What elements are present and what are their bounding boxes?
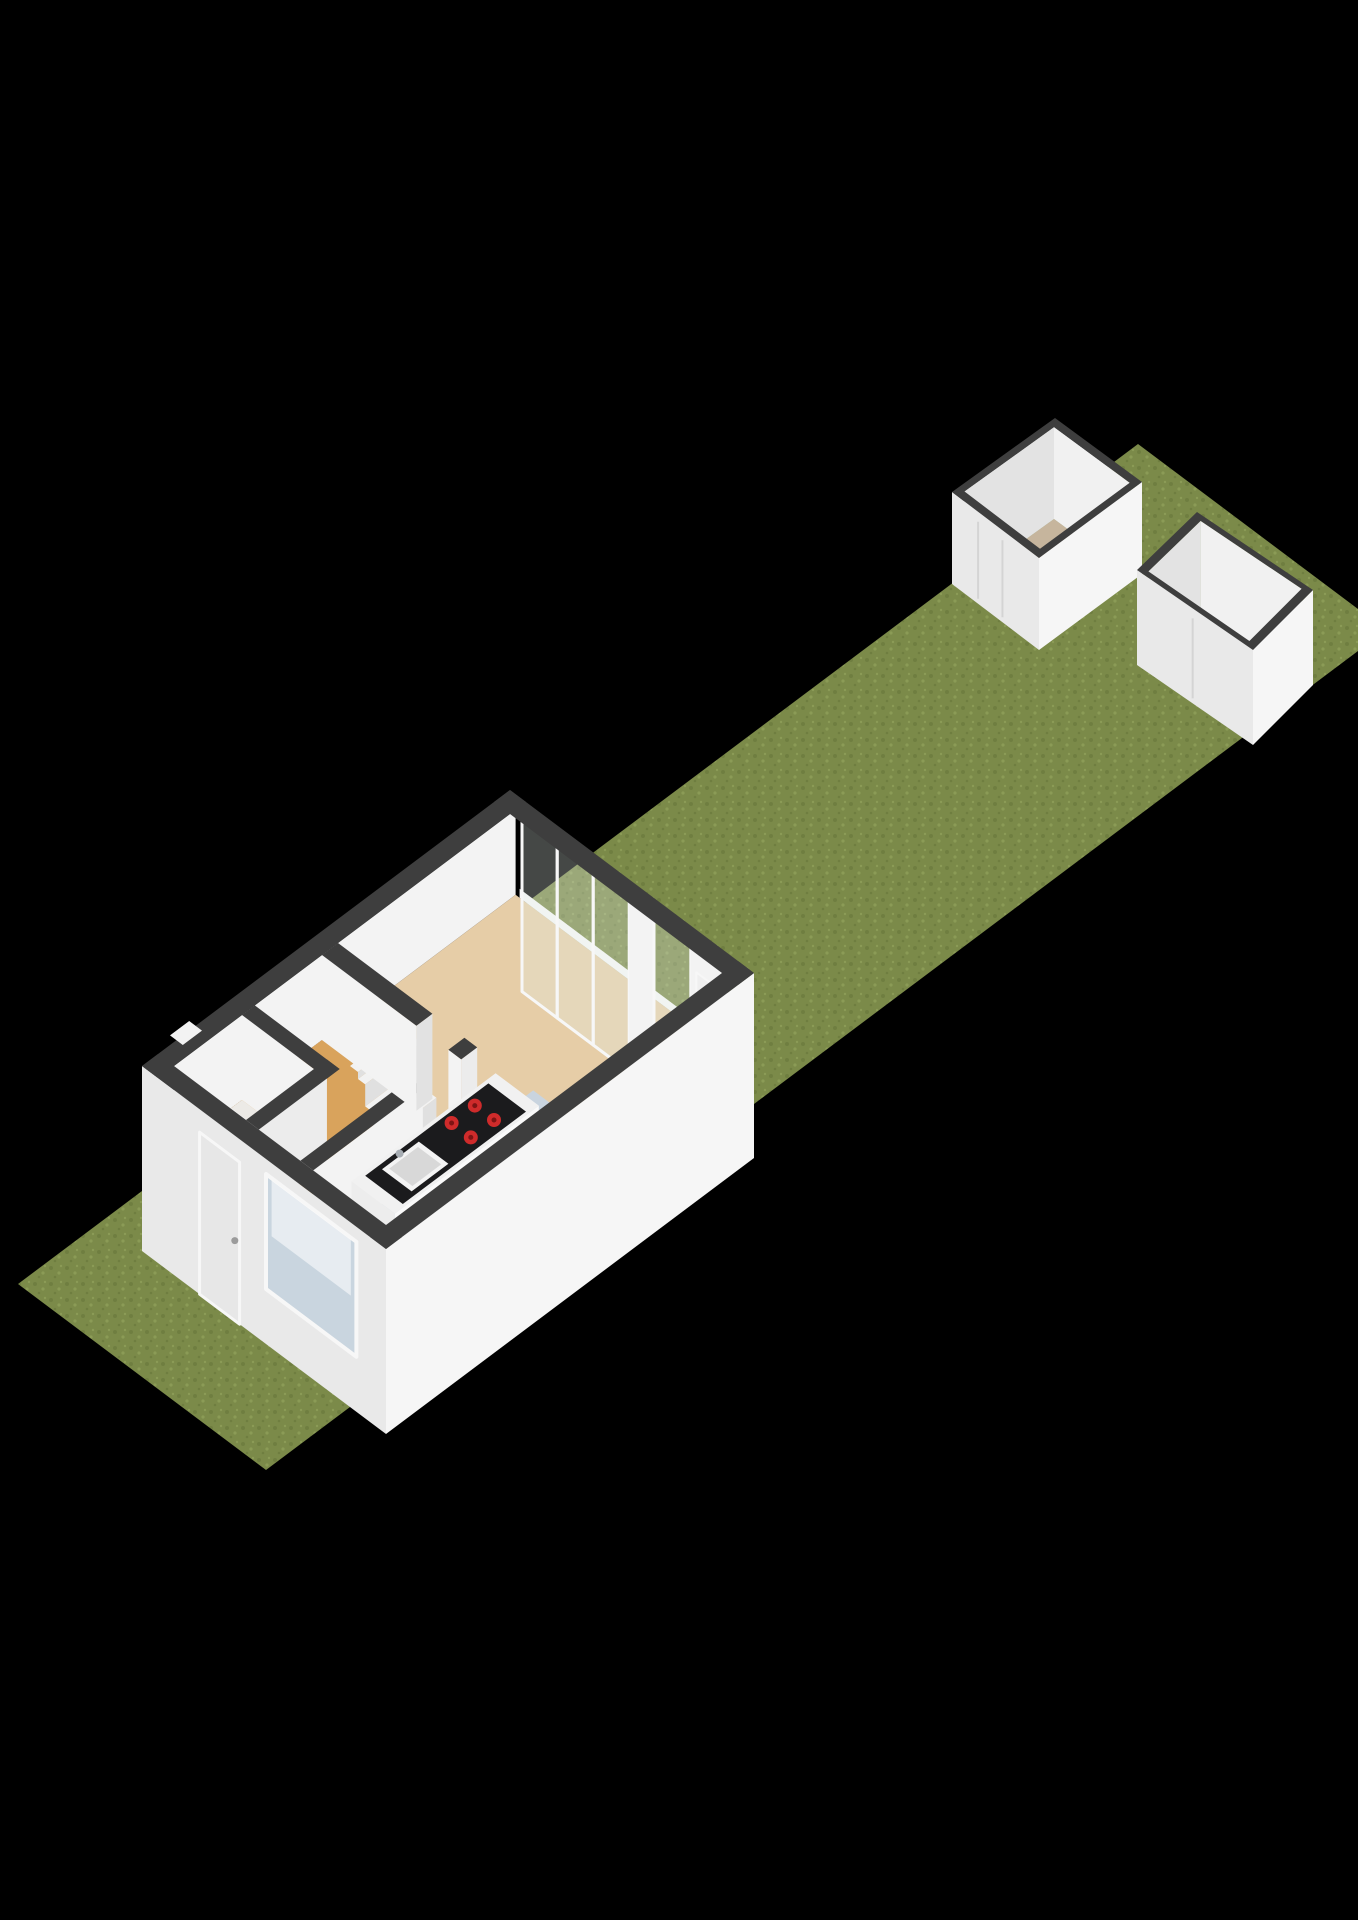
burner-center [472,1103,477,1108]
glass-panel [522,817,557,1018]
burner-center [492,1118,497,1123]
front-door[interactable] [200,1132,240,1324]
wall-stairs-end [416,1014,432,1111]
glass-panel [593,870,629,1072]
burner-center [449,1121,454,1126]
burner-center [468,1135,473,1140]
floorplan-scene[interactable] [0,0,1358,1920]
glass-panel [557,843,593,1045]
floorplan-stage [0,0,1358,1920]
kitchen-faucet [396,1150,404,1158]
door-handle [231,1237,238,1244]
